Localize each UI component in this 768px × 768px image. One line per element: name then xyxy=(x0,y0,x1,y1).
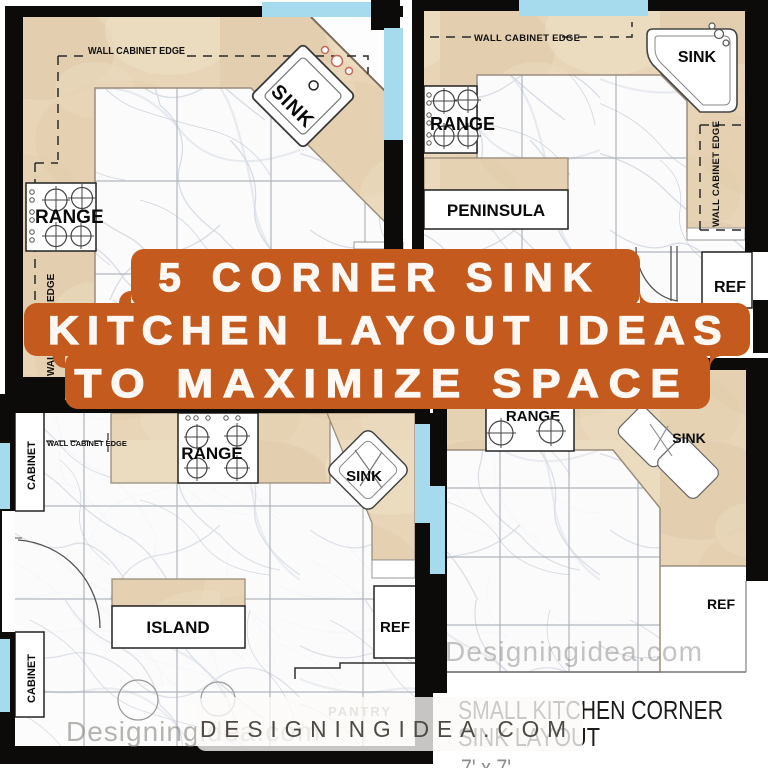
svg-text:WALL CABINET EDGE: WALL CABINET EDGE xyxy=(47,439,127,448)
svg-text:RANGE: RANGE xyxy=(35,207,104,228)
svg-text:EDGE: EDGE xyxy=(46,273,57,302)
svg-text:WALL CABINET EDGE: WALL CABINET EDGE xyxy=(711,121,722,227)
svg-text:5 CORNER SINK: 5 CORNER SINK xyxy=(159,256,602,300)
svg-text:Designingidea.com: Designingidea.com xyxy=(445,636,703,667)
svg-text:CABINET: CABINET xyxy=(26,441,38,490)
svg-text:ISLAND: ISLAND xyxy=(146,618,209,637)
svg-text:DESIGNINGIDEA.COM: DESIGNINGIDEA.COM xyxy=(200,716,574,742)
svg-text:RANGE: RANGE xyxy=(430,114,495,134)
svg-text:TO MAXIMIZE SPACE: TO MAXIMIZE SPACE xyxy=(75,362,690,406)
svg-text:SINK: SINK xyxy=(678,49,717,66)
svg-text:WALL CABINET EDGE: WALL CABINET EDGE xyxy=(88,45,185,57)
svg-text:RANGE: RANGE xyxy=(181,444,242,463)
svg-text:KITCHEN LAYOUT IDEAS: KITCHEN LAYOUT IDEAS xyxy=(48,309,730,353)
svg-text:WALL CABINET EDGE: WALL CABINET EDGE xyxy=(474,33,580,44)
svg-text:REF: REF xyxy=(707,596,735,612)
svg-text:PENINSULA: PENINSULA xyxy=(447,201,545,220)
svg-text:REF: REF xyxy=(380,619,410,636)
svg-text:CABINET: CABINET xyxy=(26,654,38,703)
svg-text:SINK: SINK xyxy=(346,468,382,485)
svg-text:SINK: SINK xyxy=(672,430,705,446)
svg-text:REF: REF xyxy=(714,279,746,296)
svg-text:7' x 7': 7' x 7' xyxy=(461,755,511,768)
